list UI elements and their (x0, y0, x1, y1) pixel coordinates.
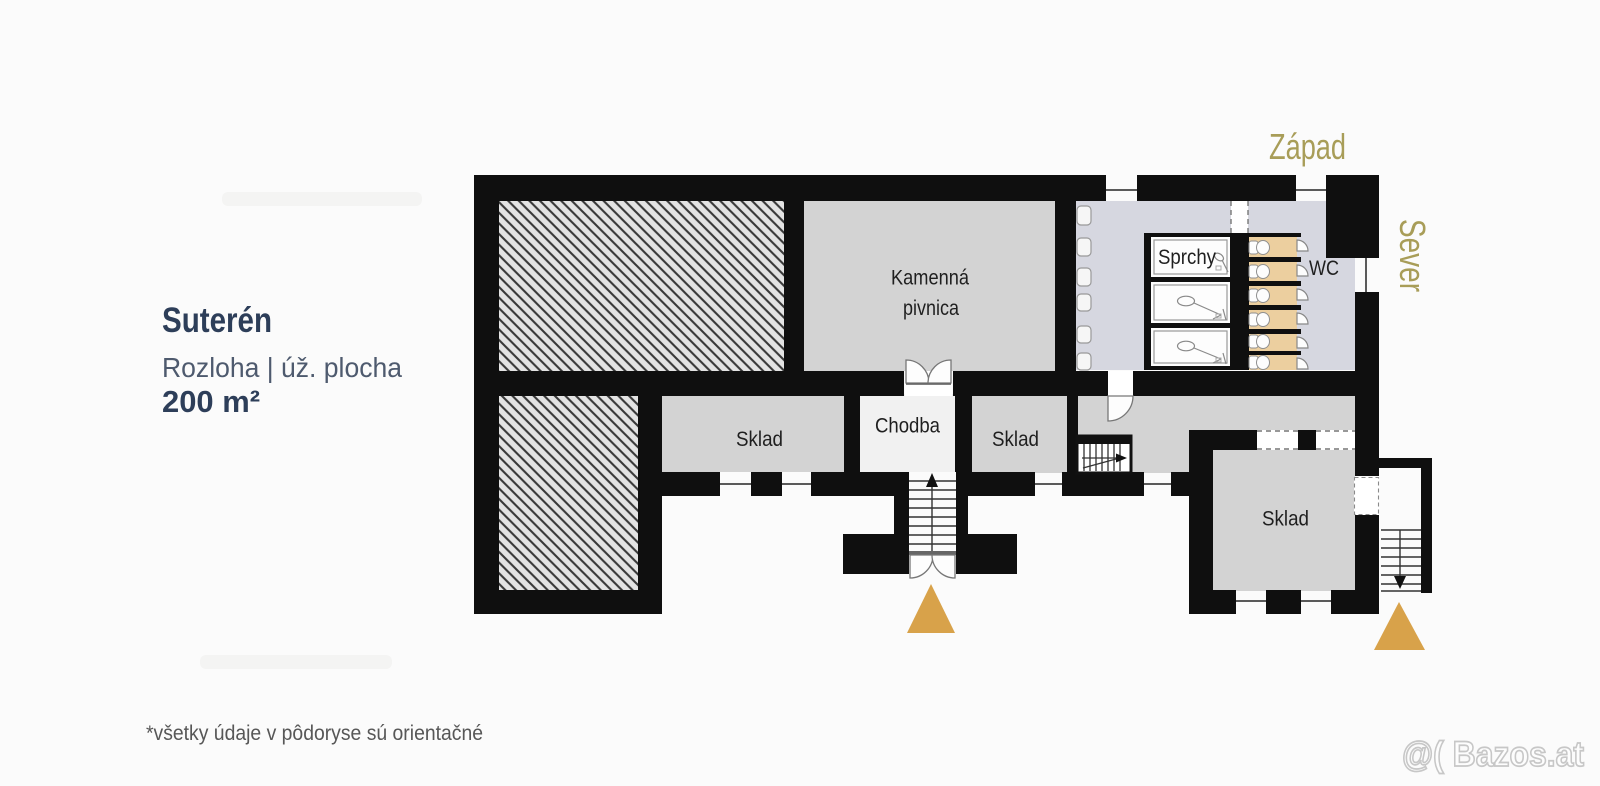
svg-text:Sklad: Sklad (1262, 508, 1309, 531)
svg-text:Sever: Sever (1392, 219, 1433, 292)
svg-text:Rozloha | úž. plocha: Rozloha | úž. plocha (162, 352, 402, 383)
svg-text:Sklad: Sklad (736, 428, 783, 451)
svg-text:pivnica: pivnica (903, 297, 959, 320)
svg-text:Západ: Západ (1269, 126, 1346, 167)
svg-text:*všetky údaje v pôdoryse sú or: *všetky údaje v pôdoryse sú orientačné (146, 722, 483, 745)
svg-text:@( Bazos.at: @( Bazos.at (1402, 735, 1584, 774)
svg-text:WC: WC (1309, 257, 1339, 280)
svg-text:Sprchy: Sprchy (1158, 246, 1216, 269)
svg-text:Kamenná: Kamenná (891, 267, 969, 290)
svg-text:Chodba: Chodba (875, 415, 940, 438)
svg-text:Sklad: Sklad (992, 428, 1039, 451)
svg-text:Suterén: Suterén (162, 301, 272, 340)
svg-text:200 m²: 200 m² (162, 384, 260, 419)
